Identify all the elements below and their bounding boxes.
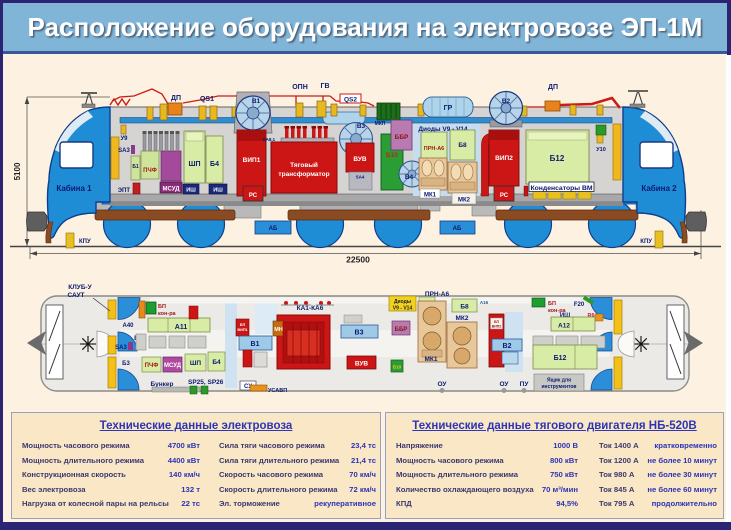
svg-text:БП: БП xyxy=(158,304,166,310)
svg-text:А16: А16 xyxy=(480,300,489,305)
svg-text:САУТ: САУТ xyxy=(68,292,85,299)
svg-text:ВИП2: ВИП2 xyxy=(492,325,502,329)
svg-text:А12: А12 xyxy=(558,323,570,330)
svg-text:Б12: Б12 xyxy=(554,355,567,362)
svg-text:Б8: Б8 xyxy=(460,304,469,311)
svg-text:Б10: Б10 xyxy=(393,365,402,370)
svg-text:V9 - V14: V9 - V14 xyxy=(393,306,413,312)
svg-text:SA3: SA3 xyxy=(115,345,127,351)
svg-text:БП: БП xyxy=(494,320,500,324)
svg-text:УСАВП: УСАВП xyxy=(268,388,287,394)
svg-text:МСУД: МСУД xyxy=(164,363,182,369)
svg-text:Б4: Б4 xyxy=(212,359,221,366)
svg-text:В3: В3 xyxy=(355,330,364,337)
svg-text:А11: А11 xyxy=(175,324,188,331)
svg-text:БП: БП xyxy=(240,323,246,327)
svg-text:Диоды: Диоды xyxy=(394,299,411,305)
svg-text:ВИП1: ВИП1 xyxy=(237,328,247,332)
svg-text:КА1-КА6: КА1-КА6 xyxy=(297,305,324,312)
svg-text:ОУ: ОУ xyxy=(438,381,448,388)
svg-text:ВУВ: ВУВ xyxy=(355,361,368,368)
svg-text:КЛУБ-У: КЛУБ-У xyxy=(68,284,92,291)
svg-text:ПУ: ПУ xyxy=(520,381,530,388)
svg-text:ПЧФ: ПЧФ xyxy=(145,363,159,369)
svg-text:Б3: Б3 xyxy=(122,361,130,367)
svg-text:БП: БП xyxy=(548,301,556,307)
svg-text:В1: В1 xyxy=(251,341,260,348)
svg-text:А40: А40 xyxy=(122,323,134,329)
svg-text:ББР: ББР xyxy=(395,327,408,333)
svg-text:МК2: МК2 xyxy=(456,315,469,322)
svg-text:МН: МН xyxy=(274,327,283,333)
svg-text:SP25, SP26: SP25, SP26 xyxy=(188,379,224,386)
svg-text:В2: В2 xyxy=(503,343,512,350)
svg-text:инструментов: инструментов xyxy=(541,384,576,390)
svg-text:ШП: ШП xyxy=(190,360,202,367)
svg-text:F20: F20 xyxy=(574,302,585,308)
svg-text:МК1: МК1 xyxy=(425,356,438,363)
svg-text:кон-ра: кон-ра xyxy=(158,311,177,317)
svg-text:ОУ: ОУ xyxy=(500,381,510,388)
svg-text:Ящик для: Ящик для xyxy=(547,378,571,384)
